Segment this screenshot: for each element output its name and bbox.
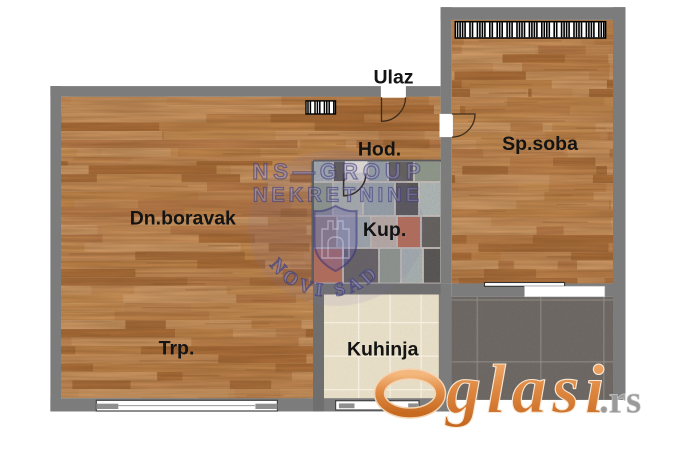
svg-text:NS—GROUP: NS—GROUP	[252, 159, 425, 184]
svg-text:.rs: .rs	[599, 379, 641, 422]
svg-text:Kuhinja: Kuhinja	[347, 339, 419, 361]
svg-text:Sp.soba: Sp.soba	[502, 133, 578, 155]
svg-text:Ulaz: Ulaz	[373, 67, 413, 89]
svg-text:Kup.: Kup.	[363, 219, 406, 241]
svg-text:Hod.: Hod.	[358, 139, 401, 161]
svg-text:Trp.: Trp.	[159, 338, 195, 360]
svg-text:Dn.boravak: Dn.boravak	[130, 208, 236, 230]
svg-text:glasi: glasi	[444, 352, 610, 429]
svg-text:NEKRETNINE: NEKRETNINE	[253, 185, 423, 207]
